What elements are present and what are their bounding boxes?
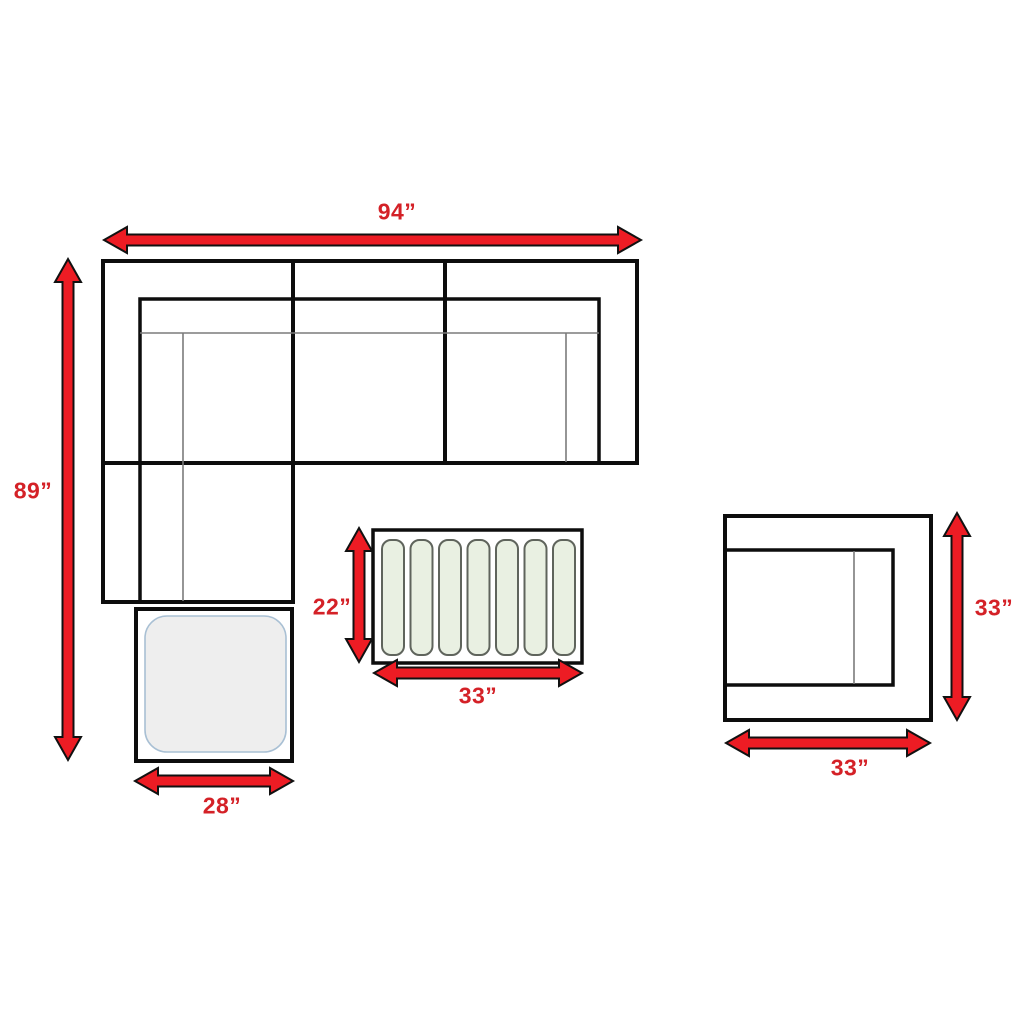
chair-width-arrow [726,730,930,756]
sofa-height-label: 89” [14,478,53,505]
table-width-label: 33” [459,683,498,710]
sofa-width-arrow [104,227,641,253]
ottoman [136,609,292,761]
table-slat-3 [439,540,461,655]
side-chair [725,516,931,720]
sofa-chaise-outline [103,463,293,602]
ottoman-width-arrow [135,768,293,794]
table-slat-1 [382,540,404,655]
coffee-table [373,530,582,663]
ottoman-cushion [145,616,286,752]
table-slat-7 [553,540,575,655]
ottoman-width-label: 28” [203,793,242,820]
table-slat-2 [411,540,433,655]
table-slat-6 [525,540,547,655]
furniture-dimension-diagram: 94” 89” 28” 22” 33” 33” 33” [0,0,1024,1024]
table-slat-4 [468,540,490,655]
table-slat-5 [496,540,518,655]
chair-width-label: 33” [831,755,870,782]
chair-seat-outline [725,550,893,685]
chair-height-label: 33” [975,595,1014,622]
chair-height-arrow [944,513,970,720]
sofa-height-arrow [55,259,81,760]
diagram-canvas [0,0,1024,1024]
sofa-width-label: 94” [378,199,417,226]
table-height-label: 22” [313,594,352,621]
chair-outer-outline [725,516,931,720]
